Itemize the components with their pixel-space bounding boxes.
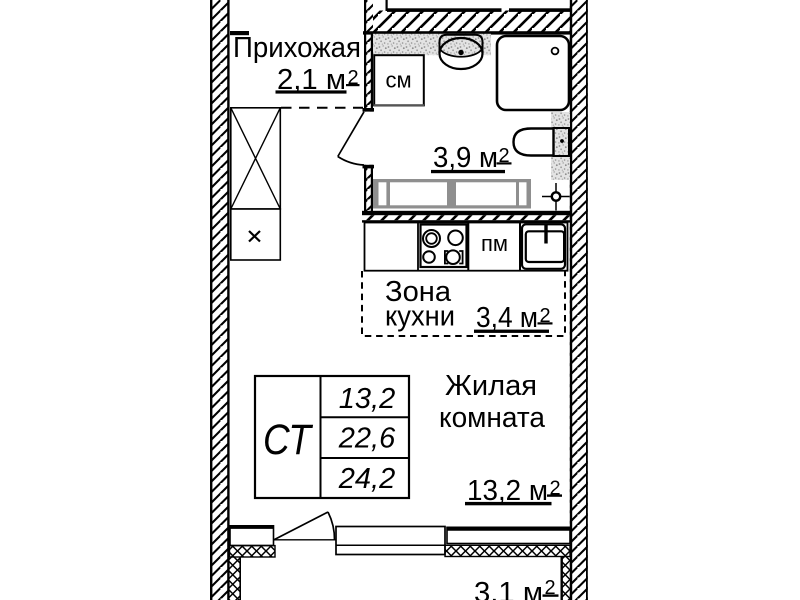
svg-text:пм: пм: [481, 231, 508, 256]
svg-text:13,2: 13,2: [339, 383, 395, 415]
svg-text:кухни: кухни: [385, 301, 455, 333]
svg-text:24,2: 24,2: [338, 463, 395, 495]
svg-text:Прихожая: Прихожая: [233, 32, 361, 64]
svg-text:см: см: [385, 68, 411, 93]
svg-text:22,6: 22,6: [338, 423, 396, 455]
svg-text:3,9 м: 3,9 м: [433, 142, 498, 174]
svg-text:комната: комната: [439, 402, 545, 434]
svg-text:3,1 м: 3,1 м: [474, 577, 543, 600]
svg-text:Жилая: Жилая: [445, 370, 537, 402]
svg-text:3,4 м: 3,4 м: [476, 302, 538, 334]
svg-text:СТ: СТ: [263, 416, 313, 464]
